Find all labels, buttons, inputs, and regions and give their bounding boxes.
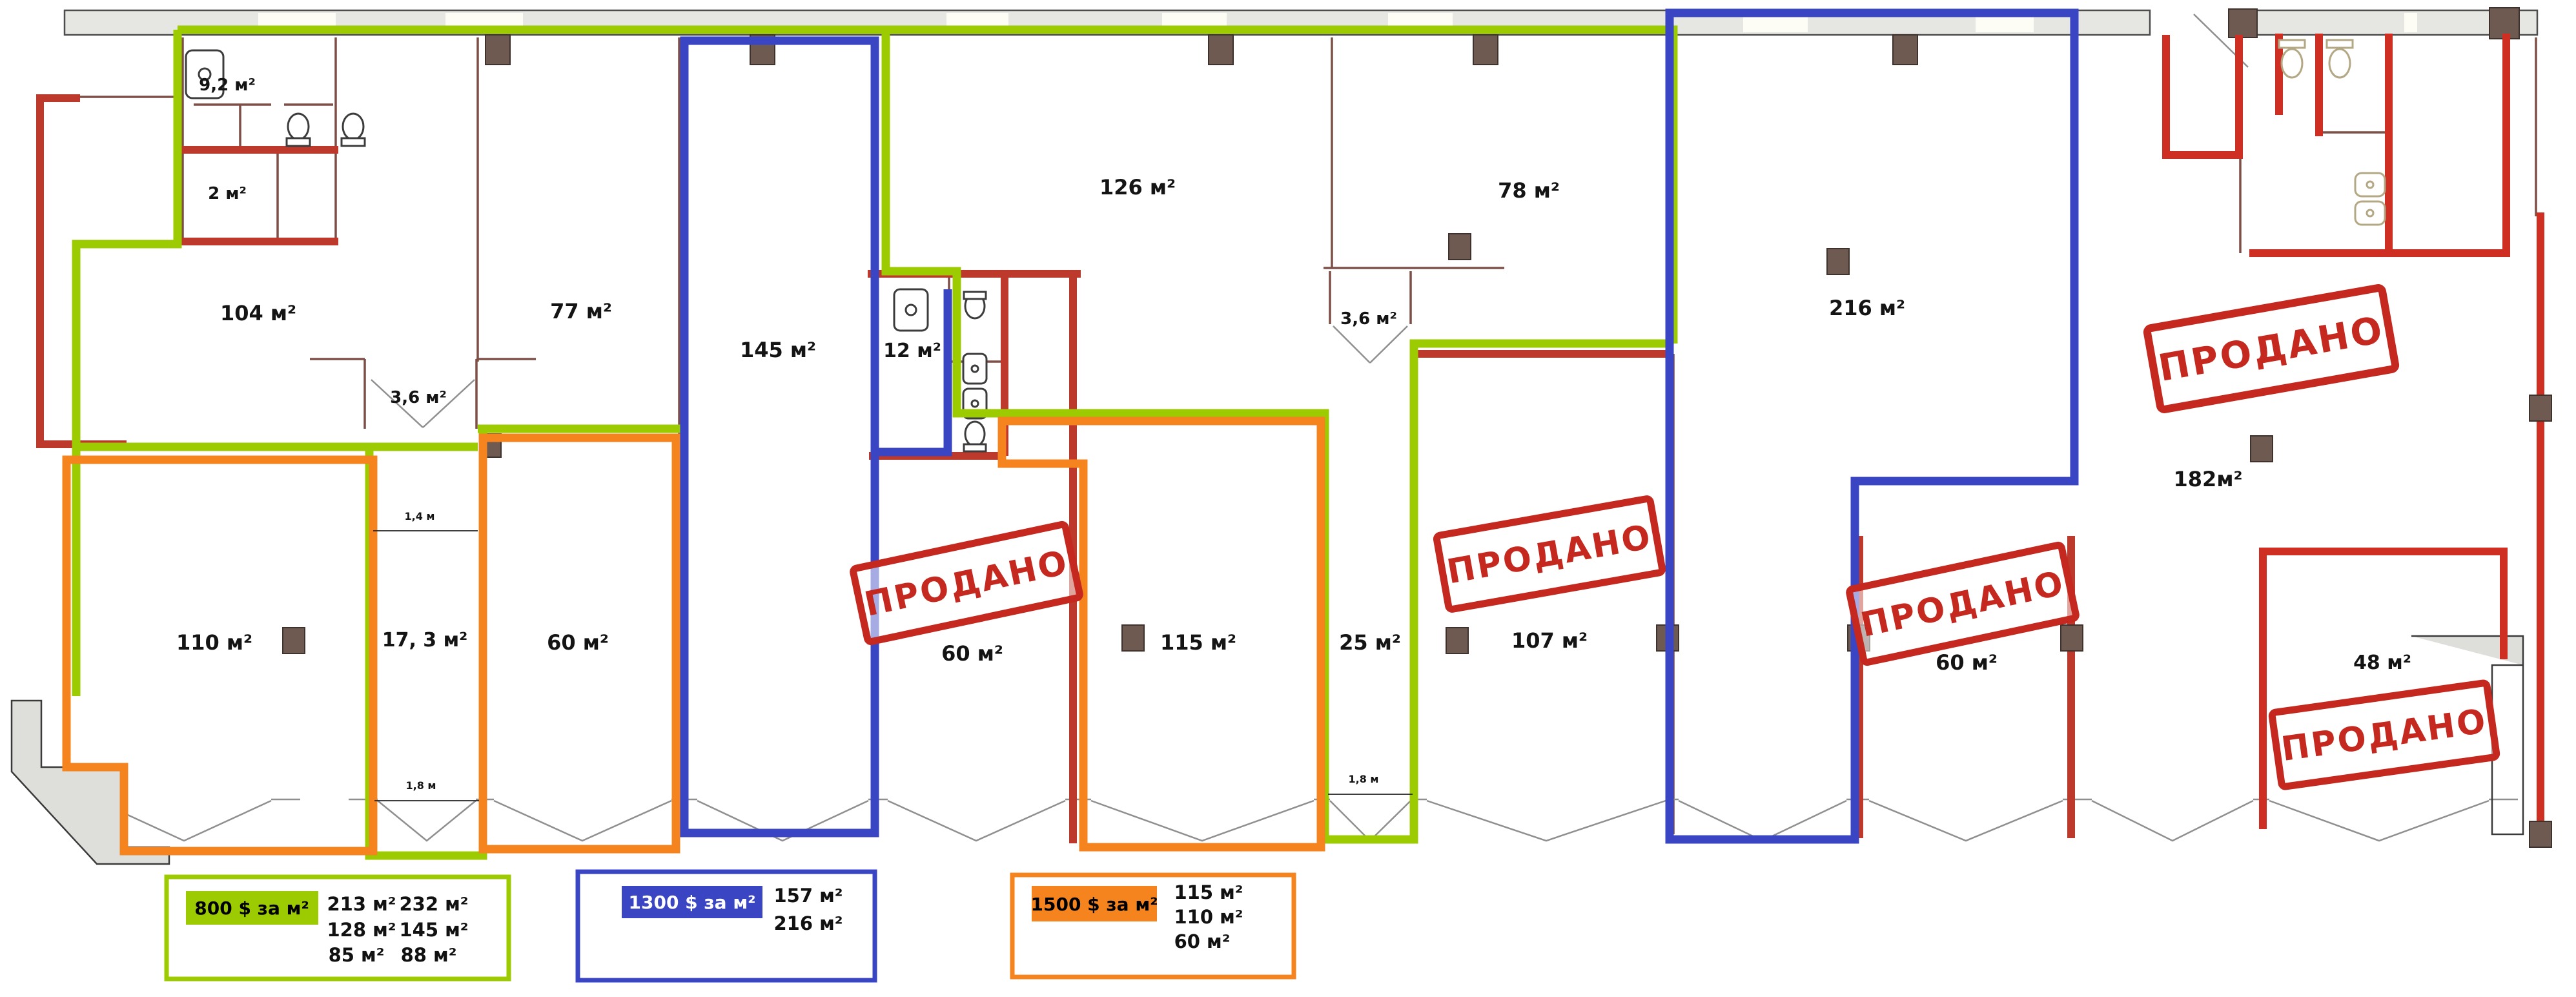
legend-area: 88 м²	[401, 944, 457, 966]
dimension-label: 1,4 м	[405, 510, 435, 522]
legend-area: 60 м²	[1174, 930, 1231, 952]
red-walls	[40, 37, 2540, 839]
unit-outline-145	[684, 41, 875, 833]
toilet-icon	[287, 114, 310, 146]
room-label-182: 182м²	[2174, 467, 2243, 491]
room-label-2: 2 м²	[208, 184, 247, 203]
room-label-48: 48 м²	[2353, 652, 2411, 674]
toilet-icon	[2327, 40, 2353, 77]
unit-outlines-blue	[684, 13, 2074, 839]
wc-fixtures-top-left	[186, 50, 365, 146]
wc-fixtures-mid	[894, 289, 986, 451]
legend-area: 115 м²	[1174, 881, 1243, 903]
legend-blue: 1300 $ за м² 157 м² 216 м²	[578, 872, 875, 980]
room-label-3-6-left: 3,6 м²	[390, 388, 447, 407]
legend-area: 213 м²	[327, 893, 396, 915]
legend-orange: 1500 $ за м² 115 м² 110 м² 60 м²	[1012, 875, 1294, 977]
legend: 800 $ за м² 213 м² 232 м² 128 м² 145 м² …	[167, 872, 1294, 980]
legend-area: 110 м²	[1174, 906, 1243, 928]
dimension-label: 1,8 м	[406, 779, 436, 792]
legend-area: 216 м²	[773, 912, 843, 934]
legend-area: 232 м²	[399, 893, 468, 915]
floor-plan-page: 1,4 м 1,8 м 1,8 м 9,2 м² 2 м² 104 м² 77 …	[0, 0, 2576, 997]
toilet-icon	[964, 422, 986, 451]
toilet-icon	[342, 114, 365, 146]
floor-plan: 1,4 м 1,8 м 1,8 м 9,2 м² 2 м² 104 м² 77 …	[0, 0, 2576, 997]
sold-stamps: ПРОДАНО ПРОДАНО ПРОДАНО ПРОДАНО ПРОДАНО	[853, 287, 2497, 787]
legend-area: 145 м²	[399, 919, 468, 941]
room-label-3-6-right: 3,6 м²	[1340, 309, 1397, 329]
room-label-216: 216 м²	[1829, 296, 1905, 320]
dimension-label: 1,8 м	[1349, 773, 1379, 785]
room-label-60-left: 60 м²	[547, 630, 609, 655]
room-label-25: 25 м²	[1339, 630, 1401, 655]
legend-area: 128 м²	[327, 919, 396, 941]
sold-stamp: ПРОДАНО	[2272, 683, 2497, 787]
room-label-17-3: 17, 3 м²	[382, 629, 468, 652]
room-label-77: 77 м²	[550, 299, 612, 324]
unit-outline-216	[1670, 13, 2074, 839]
room-label-115: 115 м²	[1160, 630, 1236, 655]
legend-area: 157 м²	[773, 885, 843, 907]
room-label-60-right: 60 м²	[1936, 650, 1998, 675]
unit-outline-green-left	[76, 30, 178, 696]
sold-stamp: ПРОДАНО	[1849, 544, 2077, 663]
price-badge-label: 1500 $ за м²	[1031, 894, 1158, 915]
legend-green: 800 $ за м² 213 м² 232 м² 128 м² 145 м² …	[167, 877, 509, 979]
room-label-126: 126 м²	[1099, 175, 1176, 200]
legend-area: 85 м²	[329, 944, 385, 966]
room-label-110: 110 м²	[176, 630, 252, 655]
room-label-107: 107 м²	[1511, 628, 1588, 653]
sold-stamp: ПРОДАНО	[853, 524, 1081, 642]
stairs	[12, 636, 2523, 864]
room-label-145: 145 м²	[740, 338, 816, 362]
price-badge-label: 1300 $ за м²	[629, 892, 756, 913]
dimension-annotations: 1,4 м 1,8 м 1,8 м	[373, 510, 1413, 801]
toilet-icon	[2279, 40, 2305, 77]
storefront-openings	[68, 799, 2518, 841]
price-badge-label: 800 $ за м²	[194, 898, 309, 919]
room-label-60-mid: 60 м²	[941, 641, 1003, 666]
sold-stamp: ПРОДАНО	[1436, 498, 1662, 610]
room-label-78: 78 м²	[1498, 178, 1560, 203]
room-label-9-2: 9,2 м²	[199, 76, 256, 95]
toilet-icon	[964, 292, 986, 318]
room-label-104: 104 м²	[220, 301, 296, 325]
sold-stamp: ПРОДАНО	[2147, 287, 2396, 410]
room-label-12: 12 м²	[883, 340, 941, 362]
